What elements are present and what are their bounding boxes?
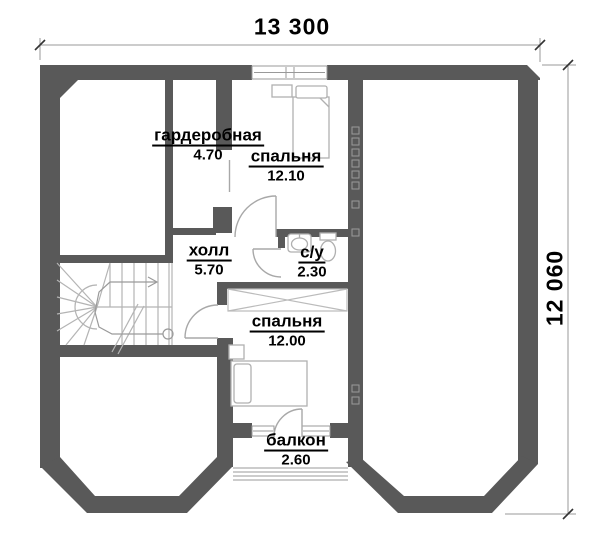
wardrobe-crossed [228,289,347,311]
bedroom-12-00-door-arc [185,305,218,338]
room-area: 12.10 [267,168,305,185]
bedroom-12-10-door-arc [235,196,276,237]
dimension-height-label: 12 060 [542,250,569,326]
room-area: 2.30 [297,264,326,281]
room-label-balkon: балкон 2.60 [264,431,328,470]
room-name: спальня [249,147,324,168]
room-name: гардеробная [152,126,264,147]
dimension-width-label: 13 300 [254,14,330,41]
room-label-spalnya-12-00: спальня 12.00 [250,312,325,351]
bed-bottom [231,361,307,406]
room-area: 12.00 [268,333,306,350]
room-label-su: с/у 2.30 [297,243,326,282]
top-window [252,66,327,79]
stairs [57,263,173,354]
floor-plan: 13 300 12 060 гардеробная 4.70 спальня 1… [0,0,600,547]
bathroom-door-arc [253,249,281,277]
room-area: 2.60 [281,452,310,469]
nightstand-top [272,85,292,97]
room-label-holl: холл 5.70 [187,241,232,280]
nightstand-bottom [229,345,244,359]
balcony-railing [233,468,348,480]
room-name: холл [187,241,232,262]
room-area: 4.70 [193,147,222,164]
room-label-spalnya-12-10: спальня 12.10 [249,147,324,186]
room-label-garderobnaya: гардеробная 4.70 [152,126,264,165]
room-name: спальня [250,312,325,333]
room-name: с/у [298,243,326,264]
room-area: 5.70 [194,262,223,279]
room-name: балкон [264,431,328,452]
